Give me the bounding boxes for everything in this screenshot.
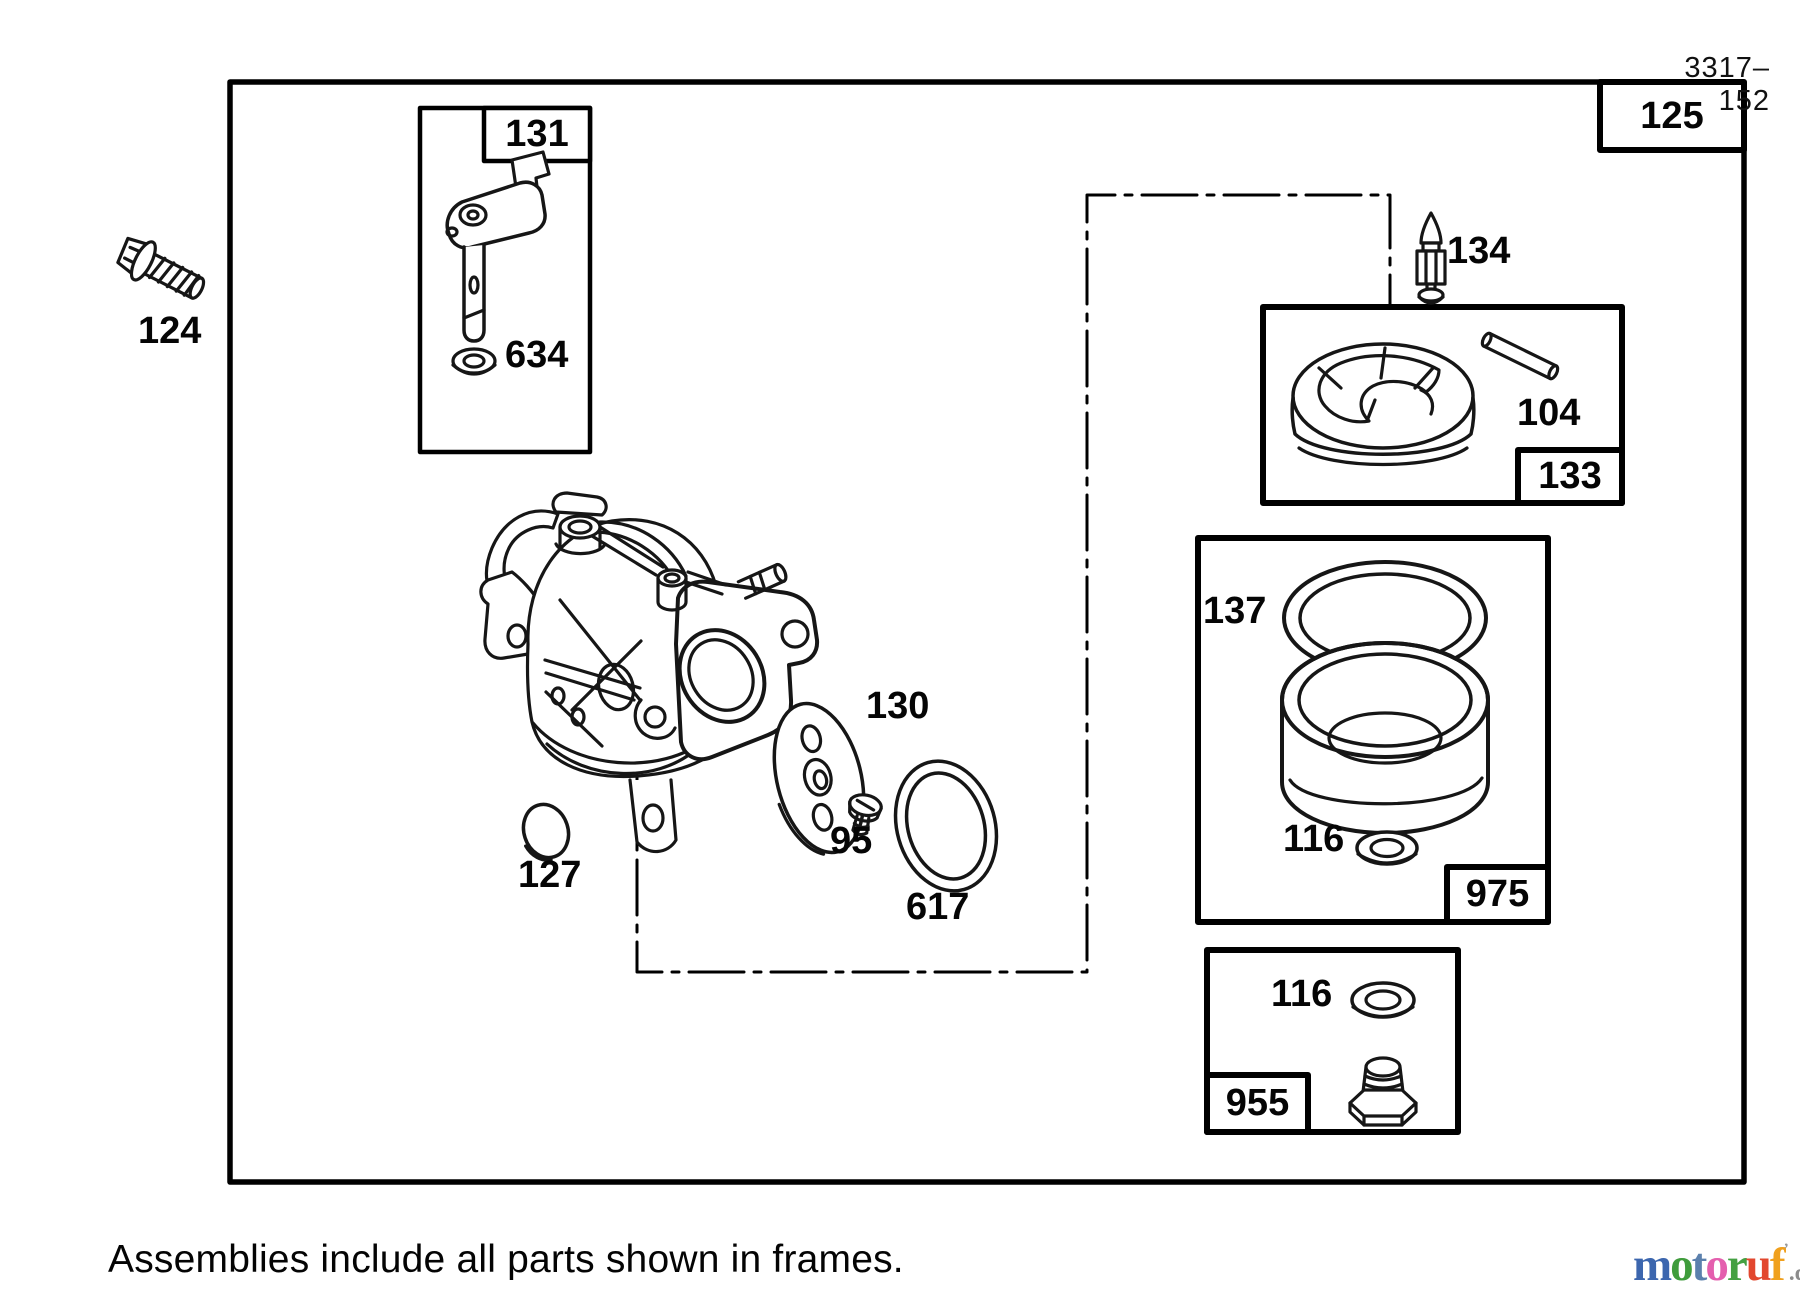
- carburetor-body-drawing: [481, 493, 817, 852]
- callout-104: 104: [1517, 394, 1580, 432]
- callout-130: 130: [866, 687, 929, 725]
- callout-116-drain: 116: [1271, 975, 1332, 1013]
- diagram-artwork: [0, 0, 1800, 1293]
- logo-letters: motoruf: [1633, 1239, 1783, 1291]
- callout-95: 95: [830, 822, 872, 860]
- o-ring-617-drawing: [881, 749, 1012, 903]
- washer-116-bowl-drawing: [1357, 832, 1417, 864]
- washer-634-drawing: [453, 349, 495, 374]
- logo-domain-suffix: .de: [1789, 1260, 1800, 1285]
- hinge-pin-drawing: [1481, 332, 1560, 380]
- assembly-boundary-dashdot-line: [637, 195, 1390, 972]
- frame-label-133: 133: [1518, 450, 1622, 503]
- callout-634: 634: [505, 336, 568, 374]
- callout-116-bowl: 116: [1283, 820, 1344, 858]
- motoruf-logo[interactable]: motoruf’.de: [1633, 1242, 1800, 1289]
- frame-label-125: 125: [1600, 82, 1744, 150]
- assemblies-note: Assemblies include all parts shown in fr…: [108, 1238, 904, 1282]
- drain-bolt-drawing: [1350, 1058, 1416, 1125]
- callout-617: 617: [906, 888, 969, 926]
- float-bowl-137-drawing: [1282, 562, 1488, 833]
- throttle-shaft-131-drawing: [447, 152, 549, 341]
- logo-trademark-mark: ’: [1783, 1241, 1788, 1258]
- washer-116-drain-drawing: [1352, 983, 1414, 1017]
- frame-label-131: 131: [484, 108, 590, 161]
- callout-134: 134: [1447, 232, 1510, 270]
- frame-label-975: 975: [1447, 867, 1548, 922]
- float-104-drawing: [1292, 344, 1474, 465]
- callout-127: 127: [518, 856, 581, 894]
- callout-137: 137: [1203, 592, 1266, 630]
- parts-diagram-page: 3317–152 125 131 133 975 955 124 634 130…: [0, 0, 1800, 1293]
- callout-124: 124: [138, 312, 201, 350]
- frame-label-955: 955: [1207, 1075, 1308, 1132]
- needle-valve-134-drawing: [1417, 213, 1445, 303]
- bolt-124-drawing: [112, 231, 210, 309]
